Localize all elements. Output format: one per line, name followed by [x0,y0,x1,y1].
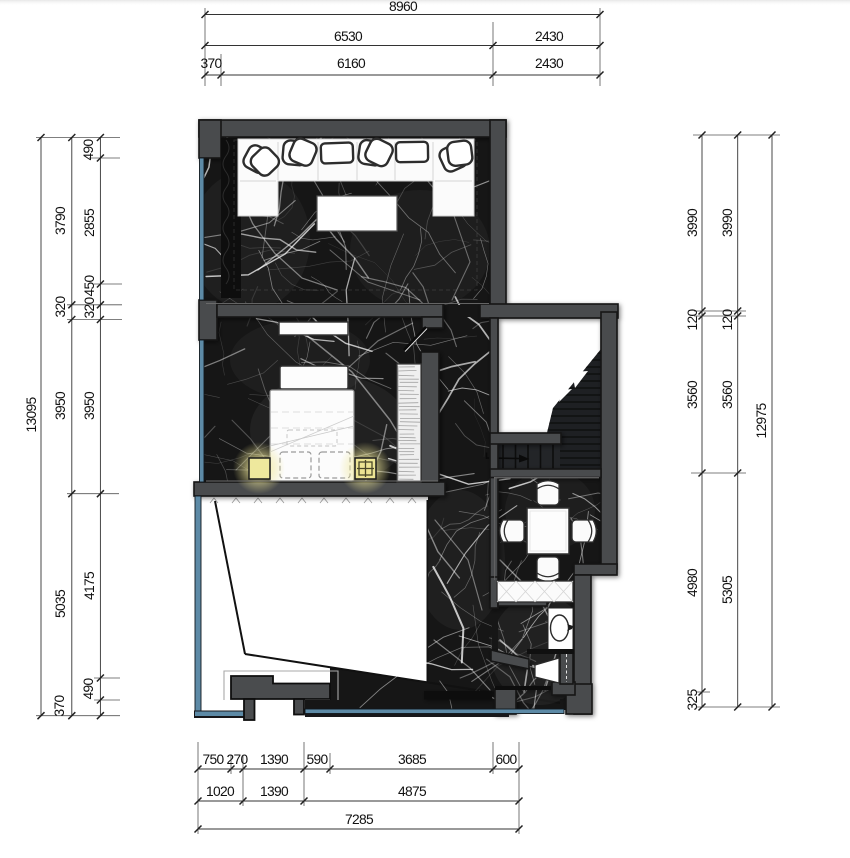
svg-text:3790: 3790 [53,206,68,235]
svg-text:490: 490 [81,139,96,161]
svg-text:1390: 1390 [260,784,289,799]
svg-text:590: 590 [307,752,329,767]
svg-text:370: 370 [201,56,223,71]
svg-text:270: 270 [227,752,249,767]
svg-text:320: 320 [53,296,68,318]
svg-text:13095: 13095 [24,397,39,433]
svg-text:3560: 3560 [720,380,735,409]
svg-text:120: 120 [720,309,735,331]
svg-text:3950: 3950 [53,391,68,420]
svg-text:5035: 5035 [53,589,68,618]
svg-text:3990: 3990 [685,208,700,237]
svg-text:4980: 4980 [685,568,700,597]
svg-text:1390: 1390 [260,752,289,767]
svg-text:4175: 4175 [82,571,97,600]
svg-text:4875: 4875 [398,784,427,799]
svg-text:6160: 6160 [337,56,366,71]
svg-text:600: 600 [496,752,518,767]
svg-text:5305: 5305 [720,575,735,604]
svg-text:750: 750 [203,752,225,767]
svg-text:12975: 12975 [754,403,769,439]
svg-text:325: 325 [685,689,700,711]
svg-text:3950: 3950 [82,391,97,420]
svg-text:3560: 3560 [685,380,700,409]
svg-text:7285: 7285 [345,812,374,827]
svg-text:450: 450 [82,275,97,297]
svg-text:370: 370 [52,695,67,717]
svg-text:2855: 2855 [82,208,97,237]
svg-text:6530: 6530 [334,29,363,44]
svg-text:2430: 2430 [535,56,564,71]
svg-text:490: 490 [81,678,96,700]
svg-text:2430: 2430 [535,29,564,44]
svg-text:8960: 8960 [389,0,418,14]
svg-text:1020: 1020 [206,784,235,799]
svg-text:120: 120 [685,309,700,331]
svg-text:3685: 3685 [398,752,427,767]
svg-text:320: 320 [82,297,97,319]
svg-text:3990: 3990 [720,208,735,237]
